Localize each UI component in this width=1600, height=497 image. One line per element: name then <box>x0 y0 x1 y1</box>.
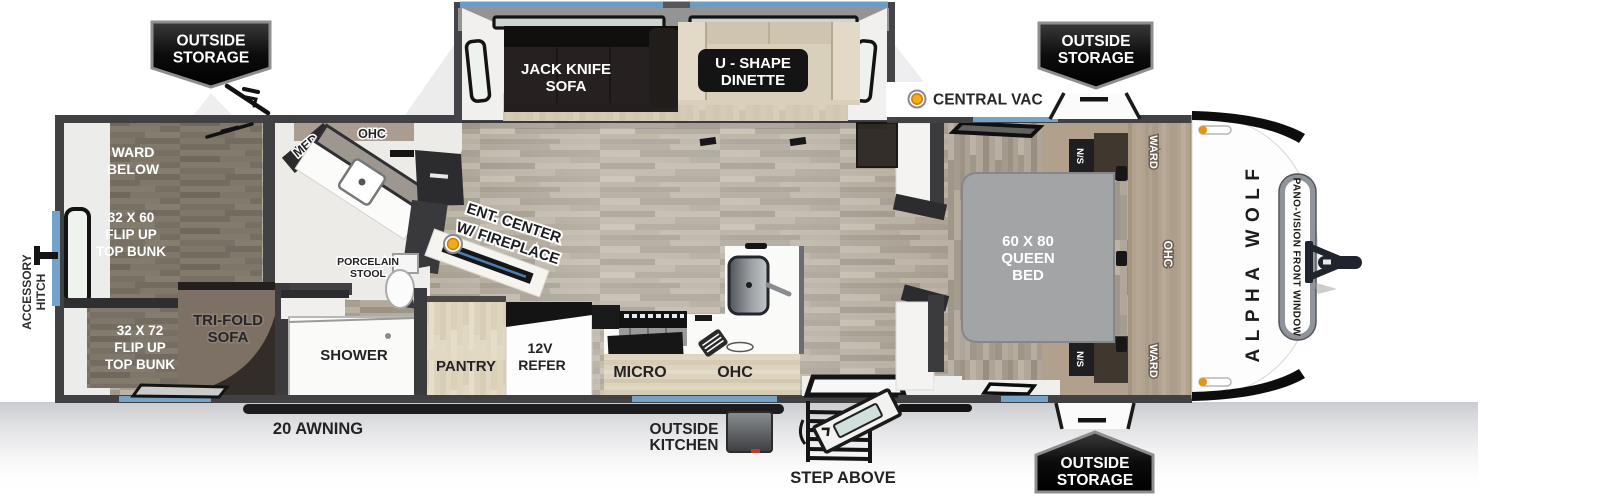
svg-text:20 AWNING: 20 AWNING <box>273 420 363 438</box>
svg-text:N/S: N/S <box>1074 148 1085 164</box>
svg-text:SOFA: SOFA <box>546 78 587 95</box>
svg-text:OUTSIDE: OUTSIDE <box>177 33 246 50</box>
svg-text:STORAGE: STORAGE <box>1058 50 1134 67</box>
svg-text:JACK KNIFE: JACK KNIFE <box>521 61 611 78</box>
svg-text:STOOL: STOOL <box>350 268 387 280</box>
svg-text:REFER: REFER <box>518 357 565 373</box>
svg-text:PORCELAIN: PORCELAIN <box>337 256 399 268</box>
svg-text:SHOWER: SHOWER <box>320 347 388 364</box>
svg-text:ALPHA WOLF: ALPHA WOLF <box>1243 162 1264 363</box>
svg-text:OUTSIDE: OUTSIDE <box>1061 455 1130 472</box>
svg-text:OUTSIDE: OUTSIDE <box>1062 33 1131 50</box>
svg-text:STORAGE: STORAGE <box>1057 472 1133 489</box>
svg-text:CENTRAL VAC: CENTRAL VAC <box>933 92 1043 109</box>
svg-text:32 X 60: 32 X 60 <box>108 210 155 225</box>
svg-text:MICRO: MICRO <box>613 364 666 381</box>
svg-text:OHC: OHC <box>1161 241 1175 268</box>
svg-text:WARD: WARD <box>1147 135 1159 169</box>
svg-text:STORAGE: STORAGE <box>173 50 249 67</box>
svg-text:U - SHAPE: U - SHAPE <box>715 55 791 72</box>
svg-text:BED: BED <box>1012 267 1044 284</box>
svg-text:PANTRY: PANTRY <box>436 358 496 375</box>
svg-text:OHC: OHC <box>717 364 753 381</box>
svg-text:FLIP UP: FLIP UP <box>105 227 157 242</box>
svg-text:TRI-FOLD: TRI-FOLD <box>193 312 263 329</box>
svg-text:KITCHEN: KITCHEN <box>650 437 719 454</box>
svg-text:DINETTE: DINETTE <box>721 72 785 89</box>
svg-text:N/S: N/S <box>1074 351 1085 367</box>
svg-text:BELOW: BELOW <box>107 161 160 177</box>
svg-text:WARD: WARD <box>1147 344 1159 378</box>
svg-text:FLIP UP: FLIP UP <box>114 340 166 355</box>
svg-text:32 X 72: 32 X 72 <box>117 323 164 338</box>
svg-text:TOP BUNK: TOP BUNK <box>105 357 175 372</box>
svg-text:HITCH: HITCH <box>34 274 48 311</box>
svg-text:PANO-VISION FRONT WINDOW: PANO-VISION FRONT WINDOW <box>1291 178 1302 337</box>
svg-text:ACCESSORY: ACCESSORY <box>20 254 34 330</box>
svg-text:OHC: OHC <box>358 127 386 141</box>
svg-text:QUEEN: QUEEN <box>1001 250 1054 267</box>
svg-text:OUTSIDE: OUTSIDE <box>650 421 719 438</box>
svg-text:TOP BUNK: TOP BUNK <box>96 244 166 259</box>
svg-text:SOFA: SOFA <box>208 329 249 346</box>
svg-text:STEP ABOVE: STEP ABOVE <box>790 469 895 487</box>
svg-text:WARD: WARD <box>112 144 155 160</box>
svg-text:60 X 80: 60 X 80 <box>1002 233 1054 250</box>
svg-text:12V: 12V <box>528 340 554 356</box>
